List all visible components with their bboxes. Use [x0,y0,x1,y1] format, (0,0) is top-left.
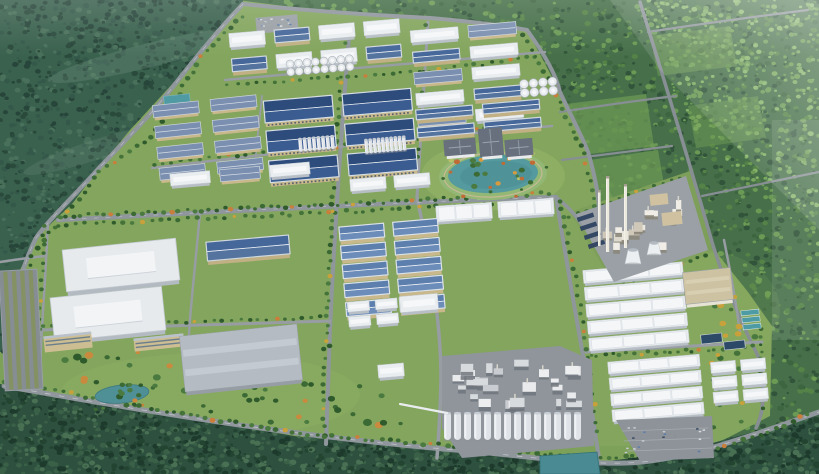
center-white-small-south [377,363,404,381]
aerial-industrial-park-render: Aerial 3D rendering of a large industria… [0,0,819,474]
parking-west-lot [0,269,43,391]
pavilion-west [443,138,477,160]
scene-layers [0,0,819,474]
haze-right-edge [772,120,819,340]
power-plant-tan-2 [661,211,682,226]
warehouses-se-upper [583,262,690,354]
power-plant-tan-1 [649,193,668,206]
building-flat-tan-se [682,268,733,308]
center-white-mid [399,293,438,315]
pavilion-center [478,127,505,160]
industrial-park-svg [0,0,819,474]
building-flat-gray [179,324,303,396]
pond-south [540,452,600,474]
basin-dark-1 [701,333,723,344]
pavilion-east [504,138,534,160]
